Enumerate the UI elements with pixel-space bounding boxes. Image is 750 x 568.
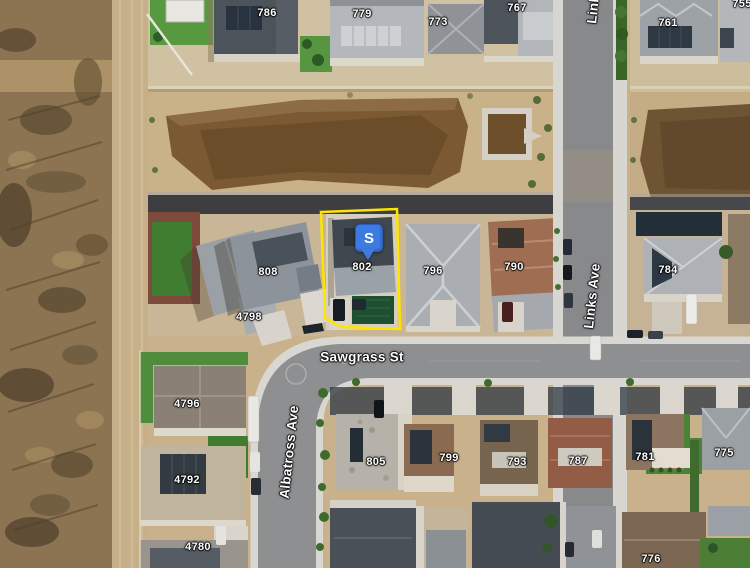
house-number-4798: 4798 (236, 311, 262, 323)
house-number-4792: 4792 (174, 474, 200, 486)
house-number-776: 776 (641, 553, 660, 565)
map-viewport[interactable]: S 786 779 773 767 761 755 808 802 796 79… (0, 0, 750, 568)
street-label-sawgrass-st: Sawgrass St (320, 350, 404, 365)
house-number-773: 773 (428, 16, 447, 28)
street-label-links-ave-top: Links Ave (584, 0, 606, 24)
house-number-781: 781 (635, 451, 654, 463)
house-number-775: 775 (714, 447, 733, 459)
street-label-albatross-ave: Albatross Ave (277, 405, 302, 500)
house-number-799: 799 (439, 452, 458, 464)
house-number-805: 805 (366, 456, 385, 468)
house-number-755: 755 (732, 0, 750, 10)
house-number-808: 808 (258, 266, 277, 278)
house-number-779: 779 (352, 8, 371, 20)
house-number-793: 793 (507, 456, 526, 468)
house-number-790: 790 (504, 261, 523, 273)
house-number-4796: 4796 (174, 398, 200, 410)
map-labels-layer: 786 779 773 767 761 755 808 802 796 790 … (0, 0, 750, 568)
street-label-links-ave: Links Ave (581, 263, 603, 330)
house-number-786: 786 (257, 7, 276, 19)
house-number-761: 761 (658, 17, 677, 29)
house-number-784: 784 (658, 264, 677, 276)
house-number-796: 796 (423, 265, 442, 277)
house-number-4780: 4780 (185, 541, 211, 553)
house-number-787: 787 (568, 455, 587, 467)
house-number-767: 767 (507, 2, 526, 14)
house-number-802: 802 (352, 261, 371, 273)
